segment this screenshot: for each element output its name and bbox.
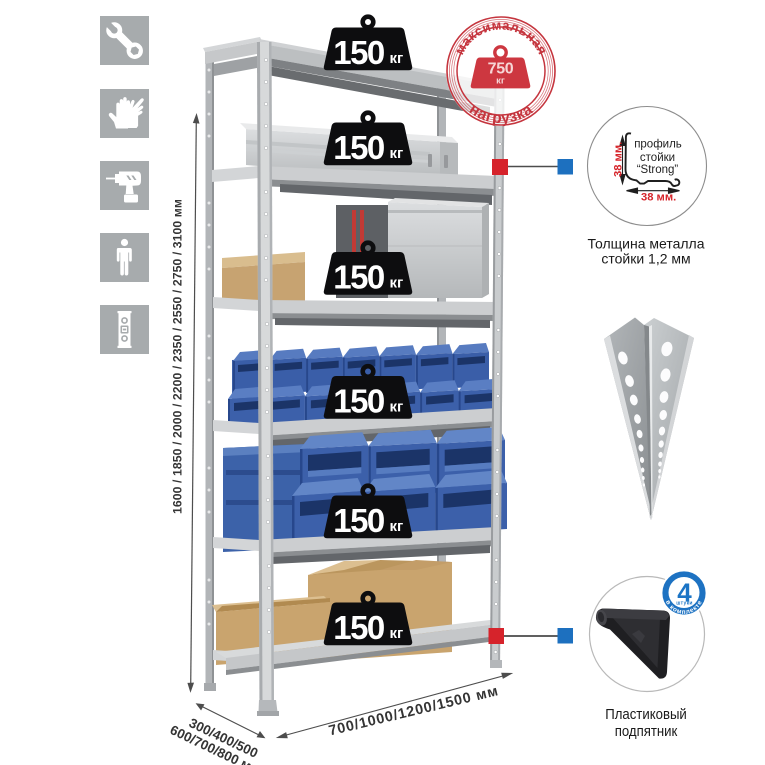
svg-text:кг: кг xyxy=(496,76,505,87)
svg-text:38 мм.: 38 мм. xyxy=(641,192,676,204)
svg-text:150: 150 xyxy=(333,502,384,539)
svg-text:штуки: штуки xyxy=(676,601,693,607)
svg-text:кг: кг xyxy=(390,50,404,67)
svg-text:38 мм.: 38 мм. xyxy=(613,142,625,177)
svg-text:подпятник: подпятник xyxy=(615,722,678,739)
svg-text:150: 150 xyxy=(333,259,384,296)
svg-text:150: 150 xyxy=(333,383,384,420)
svg-text:1600 / 1850 / 2000 / 2200 / 23: 1600 / 1850 / 2000 / 2200 / 2350 / 2550 … xyxy=(171,199,185,514)
svg-text:кг: кг xyxy=(390,275,404,292)
svg-text:Пластиковый: Пластиковый xyxy=(605,705,687,722)
svg-text:кг: кг xyxy=(390,145,404,162)
svg-text:700/1000/1200/1500 мм: 700/1000/1200/1500 мм xyxy=(327,683,500,739)
svg-text:“Strong”: “Strong” xyxy=(637,164,679,176)
svg-text:150: 150 xyxy=(333,129,384,166)
svg-text:стойки: стойки xyxy=(640,152,675,164)
svg-text:150: 150 xyxy=(333,34,384,71)
svg-text:стойки 1,2 мм: стойки 1,2 мм xyxy=(601,251,690,267)
svg-text:Толщина металла: Толщина металла xyxy=(588,236,705,252)
svg-text:профиль: профиль xyxy=(634,139,682,151)
svg-text:кг: кг xyxy=(390,518,404,535)
svg-text:кг: кг xyxy=(390,625,404,642)
svg-text:150: 150 xyxy=(333,609,384,646)
svg-text:кг: кг xyxy=(390,399,404,416)
